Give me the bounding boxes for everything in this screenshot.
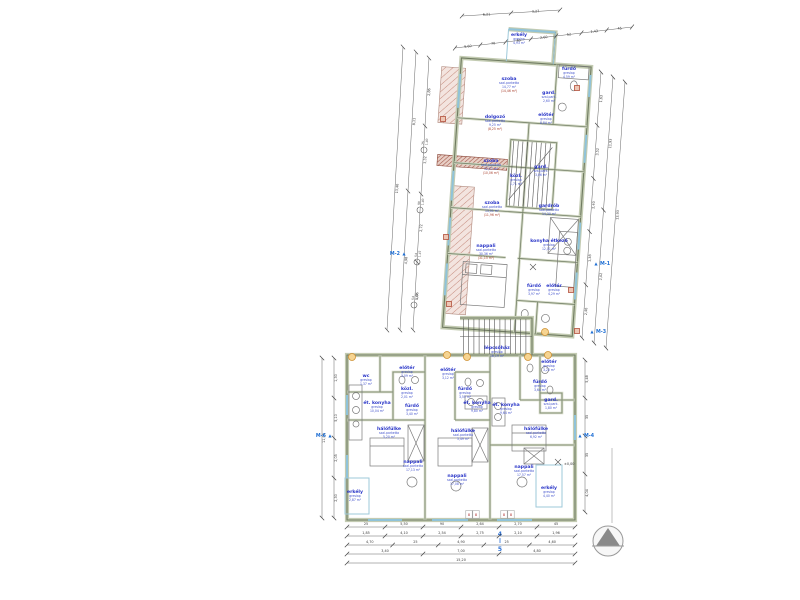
room-area: 12,01 m² xyxy=(542,247,557,251)
room-area: 3,20 m² xyxy=(543,368,556,372)
room-area: 9,64 m² xyxy=(500,411,513,415)
room-label: szobaszal.parketta14,77 m²(14,46 m²) xyxy=(499,76,519,93)
room-label: fürdőgreslap3,64 m² xyxy=(533,379,547,392)
dimension-chain: 3,407,004,80 xyxy=(345,549,577,556)
room-label: fürdőgreslap4,59 m² xyxy=(562,66,576,79)
room-label: fürdőgreslap3,97 m² xyxy=(527,283,541,296)
room-label: előtérgreslap3,20 m² xyxy=(541,358,557,372)
room-area: 16,19 m² xyxy=(490,354,505,358)
room-area: 8,84 m² xyxy=(540,121,553,125)
room-area-alt: (8,25 m²) xyxy=(488,127,503,131)
room-label: előtérgreslap8,84 m² xyxy=(538,111,554,125)
room-area: 1,80 m² xyxy=(545,406,558,410)
room-label: erkélygreslap2,87 m² xyxy=(347,488,363,502)
section-marker-triangle-icon: ▲ xyxy=(578,433,582,438)
column-marker xyxy=(575,86,580,91)
room-label: konyha étkezőgreslap12,01 m² xyxy=(530,237,568,251)
room-area: 3,97 m² xyxy=(528,292,541,296)
room-area: 14,30 m² xyxy=(542,212,557,216)
room-area: 3,40 m² xyxy=(406,412,419,416)
dimension-value: 52 xyxy=(567,32,572,36)
door-tag-value: 8 xyxy=(475,513,478,517)
level-mark-label: ±0,00 xyxy=(564,462,574,466)
room-area: 17,57 m² xyxy=(517,473,532,477)
section-marker: ▲M-6 xyxy=(316,433,332,439)
section-marker-label: M-3 xyxy=(596,329,606,335)
room-area: 2,87 m² xyxy=(349,498,362,502)
dimension-value: 30 xyxy=(516,38,521,42)
room-area: 17,08 m² xyxy=(450,482,465,486)
room-area: 2,01 m² xyxy=(401,395,414,399)
dimension-value: 5,50 xyxy=(400,522,408,526)
dimension-value: 2,60 xyxy=(540,35,548,40)
dimension-value: 8,11 xyxy=(412,118,416,126)
dimension-value: 2,72 xyxy=(419,224,423,232)
room-area: 5,20 m² xyxy=(383,435,396,439)
dimension-value: 7,00 xyxy=(457,549,465,553)
section-marker: ▲M-2 xyxy=(390,251,406,257)
section-cut-mark: 4 5 xyxy=(498,531,502,553)
room-label: ét. konyhagreslap10,04 m² xyxy=(363,399,390,413)
window-sill-height: 1,40 xyxy=(415,293,419,300)
window-sill-height: 1,40 xyxy=(421,198,425,205)
room-area-alt: (14,46 m²) xyxy=(501,89,518,93)
room-label: szobaszal.parketta12,17 m²(10,06 m²) xyxy=(481,158,501,175)
dimension-value: 5,10 xyxy=(334,414,338,422)
dimension-value: 25 xyxy=(413,540,417,544)
dimension-chain: 6,213,27 xyxy=(460,8,563,19)
dimension-value: 2,30 xyxy=(334,494,338,502)
column-marker xyxy=(569,288,574,293)
door-id-bubble xyxy=(464,354,471,361)
room-area: 3,55 m² xyxy=(459,395,472,399)
door-tag-value: 8 xyxy=(510,513,513,517)
sink xyxy=(477,380,484,387)
column-marker xyxy=(441,117,446,122)
dimension-value: 9,60 xyxy=(464,44,472,49)
section-marker-triangle-icon: ▲ xyxy=(590,329,594,334)
north-arrow-icon xyxy=(592,448,624,556)
dimension-chain: 15,20 xyxy=(345,558,577,565)
section-marker-label: M-6 xyxy=(316,433,327,439)
door-id-bubble xyxy=(542,329,549,336)
dimension-value: 2,10 xyxy=(514,531,522,535)
bed xyxy=(370,438,404,466)
room-area: 10,04 m² xyxy=(370,409,385,413)
room-area: 17,13 m² xyxy=(406,468,421,472)
bed xyxy=(438,438,472,466)
dimension-value: 3,27 xyxy=(532,9,540,13)
dimension-value: 13,93 xyxy=(615,210,620,220)
dimension-value: 45 xyxy=(554,522,558,526)
room-area: 3,64 m² xyxy=(534,388,547,392)
section-marker: ▲M-4 xyxy=(578,433,594,439)
sink xyxy=(558,103,567,112)
room-label: nappaliszal.parketta17,57 m² xyxy=(514,464,534,477)
room-area: 6,92 m² xyxy=(530,435,543,439)
door-id-bubble xyxy=(525,354,532,361)
window-sill-height: 1,40 xyxy=(425,138,429,145)
room-label: közl.greslap2,01 m² xyxy=(401,386,414,399)
dimension-chain: 255,50902,642,7045 xyxy=(345,522,577,529)
dimension-value: 3,40 xyxy=(381,549,389,553)
dimension-value: 1,43 xyxy=(590,29,598,34)
section-cut-bottom: 5 xyxy=(498,546,502,553)
dimension-value: 2,75 xyxy=(476,531,484,535)
door-tag-value: 8 xyxy=(503,513,506,517)
room-area-alt: (11,96 m²) xyxy=(484,213,501,217)
room-label: erkélygreslap4,40 m² xyxy=(541,484,557,498)
window-sill-height: 1,47 xyxy=(418,250,422,257)
dimension-value: 4,04 xyxy=(585,489,589,497)
room-area: 1,37 m² xyxy=(360,382,373,386)
dimension-value: 1,85 xyxy=(362,531,370,535)
section-marker-triangle-icon: ▲ xyxy=(328,433,332,438)
window-tag: 901,40 xyxy=(416,198,425,213)
dimension-chain: 1,854,102,542,752,101,96 xyxy=(345,531,577,538)
dimension-value: 45 xyxy=(617,26,622,30)
dimension-value: 2,46 xyxy=(584,307,589,315)
floor-plan-drawing: ±0,00 4 5 erkélygreslap4,93 m²szobaszal.… xyxy=(0,0,800,600)
wc-fixture xyxy=(527,364,533,372)
room-label: gard.szal.park.2,60 m² xyxy=(542,90,557,103)
section-marker: ▲M-3 xyxy=(590,329,606,335)
room-label: hálófülkeszal.parketta5,49 m² xyxy=(451,427,475,441)
room-area: 4,29 m² xyxy=(548,292,561,296)
table xyxy=(407,477,417,487)
dimension-value: 3,52 xyxy=(595,148,600,156)
dimension-value: 1,96 xyxy=(552,531,560,535)
dimension-value: 25 xyxy=(364,522,368,526)
room-label: wcgreslap1,37 m² xyxy=(360,374,373,386)
column-marker xyxy=(575,329,580,334)
dimension-value: 4,98 xyxy=(404,257,408,265)
dimension-value: 2,40 xyxy=(591,201,596,209)
dimension-value: 3,32 xyxy=(423,156,427,164)
room-label: fürdőgreslap3,40 m² xyxy=(405,403,419,416)
column-marker xyxy=(447,302,452,307)
dimension-chain: 1,305,102,052,30 xyxy=(332,356,338,520)
table xyxy=(517,477,527,487)
dimension-value: 2,02 xyxy=(599,273,604,281)
wc-fixture xyxy=(465,378,471,386)
room-label: fürdőgreslap3,55 m² xyxy=(458,386,472,399)
room-label: dolgozószal.parketta9,25 m²(8,25 m²) xyxy=(485,113,505,131)
window-tag: 751,40 xyxy=(420,138,429,153)
dimension-value: 11,93 xyxy=(608,139,613,149)
section-marker-label: M-1 xyxy=(600,261,610,267)
dimension-chain: 2,863,322,724,06 xyxy=(411,56,432,333)
column-marker xyxy=(444,235,449,240)
door-tag-value: 8 xyxy=(468,513,471,517)
dimension-value: 4,10 xyxy=(400,531,408,535)
room-area: 3,12 m² xyxy=(442,376,455,380)
dimension-chain: 4,70254,90254,60 xyxy=(345,540,577,547)
dimension-chains: 6,213,279,6070302,60521,43452,863,322,72… xyxy=(320,8,635,566)
room-label: ét. konyhagreslap9,64 m² xyxy=(492,401,519,415)
room-area: 2,60 m² xyxy=(543,99,556,103)
dimension-value: 70 xyxy=(491,41,496,45)
room-area: 3,06 m² xyxy=(535,173,548,177)
room-label: gard.szal.park.3,06 m² xyxy=(534,164,549,177)
room-area: 3,09 m² xyxy=(401,374,414,378)
dimension-value: 4,70 xyxy=(366,540,374,544)
room-label: hálófülkeszal.parketta6,92 m² xyxy=(524,425,548,439)
dimension-value: 2,70 xyxy=(514,522,522,526)
room-area: 4,59 m² xyxy=(563,75,576,79)
section-marker-triangle-icon: ▲ xyxy=(594,261,598,266)
section-marker-label: M-2 xyxy=(390,251,400,257)
dimension-value: 15,20 xyxy=(456,558,466,562)
dimension-value: 6,21 xyxy=(483,12,491,16)
dimension-value: 35 xyxy=(585,415,589,419)
dimension-value: 1,30 xyxy=(334,374,338,382)
dimension-value: 2,54 xyxy=(438,531,446,535)
dimension-value: 4,90 xyxy=(457,540,465,544)
dimension-chain: 11,932,02 xyxy=(592,75,616,346)
dimension-value: 2,64 xyxy=(476,522,484,526)
floor-plan-sheet: ±0,00 4 5 erkélygreslap4,93 m²szobaszal.… xyxy=(0,0,800,600)
door-id-bubble xyxy=(349,354,356,361)
room-area: 5,49 m² xyxy=(457,437,470,441)
dimension-value: 25 xyxy=(504,540,508,544)
room-label: nappaliszal.parketta30,36 m²(31,15 m²) xyxy=(476,243,496,260)
room-area: 4,40 m² xyxy=(543,494,556,498)
room-label: gard.szal.park.1,80 m² xyxy=(544,397,559,410)
dimension-chain: 9,6070302,60521,4345 xyxy=(453,25,635,51)
dimension-value: 5,48 xyxy=(585,375,589,383)
dimension-value: 4,60 xyxy=(548,540,556,544)
room-label: hálófülkeszal.parketta5,20 m² xyxy=(377,425,401,439)
room-label: ét. konyhagreslap9,80 m² xyxy=(463,399,490,413)
door-id-bubble xyxy=(545,352,552,359)
section-marker-label: M-4 xyxy=(584,433,595,439)
room-label: nappaliszal.parketta17,13 m² xyxy=(403,459,423,472)
room-area-alt: (10,06 m²) xyxy=(483,171,500,175)
dimension-value: 90 xyxy=(440,522,444,526)
room-label: szobaszal.parketta13,01 m²(11,96 m²) xyxy=(482,200,502,217)
dimension-value: 13,46 xyxy=(395,184,400,194)
sink xyxy=(541,314,550,323)
dimension-value: 35 xyxy=(585,453,589,457)
room-area: 1,71 m² xyxy=(510,182,523,186)
section-marker-triangle-icon: ▲ xyxy=(402,251,406,256)
dimension-value: 1,63 xyxy=(599,95,604,103)
dimension-value: 1,38 xyxy=(588,254,593,262)
dimension-chain: 13,93 xyxy=(604,80,628,351)
room-label: előtérgreslap4,29 m² xyxy=(546,282,562,296)
room-label: nappaliszal.parketta17,08 m² xyxy=(447,473,467,486)
room-area: 9,80 m² xyxy=(471,409,484,413)
section-marker: ▲M-1 xyxy=(594,261,610,267)
room-label: közl.greslap1,71 m² xyxy=(510,173,523,186)
dimension-value: 2,05 xyxy=(334,454,338,462)
door-id-bubble xyxy=(444,352,451,359)
dimension-value: 4,80 xyxy=(533,549,541,553)
dimension-value: 2,86 xyxy=(427,88,431,96)
room-area-alt: (31,15 m²) xyxy=(478,256,495,260)
